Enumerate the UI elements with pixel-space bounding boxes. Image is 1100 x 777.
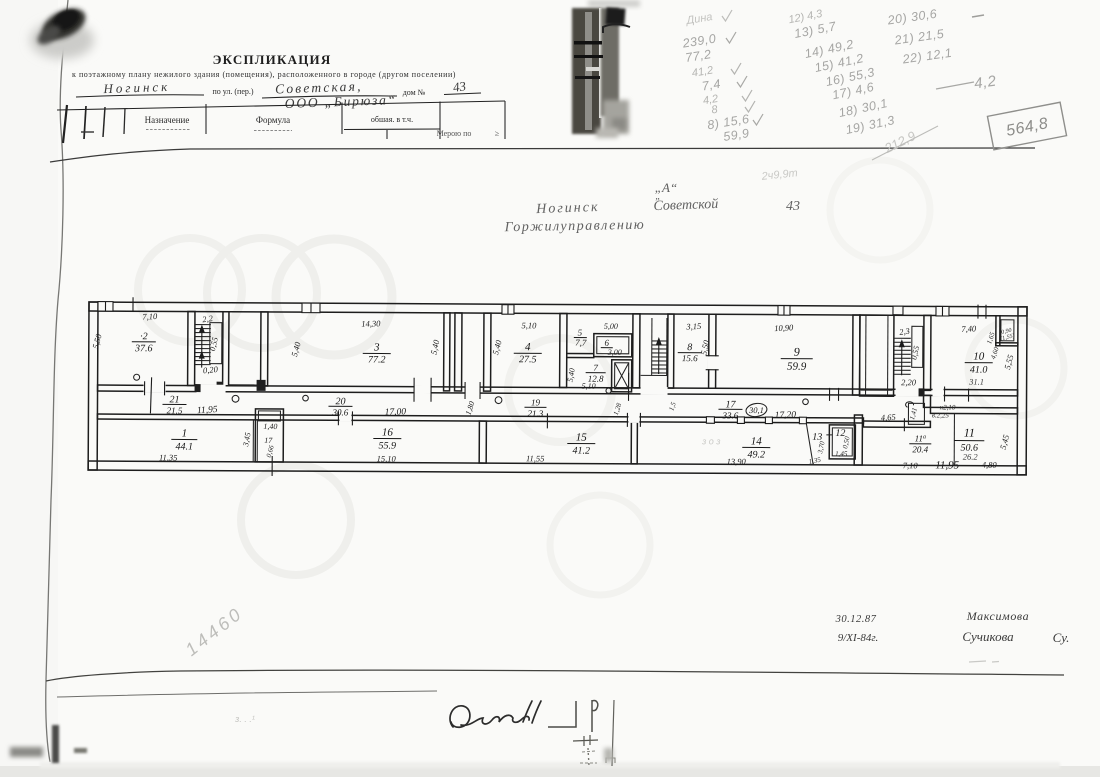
- svg-text:5: 5: [578, 328, 583, 338]
- svg-text:к поэтажному плану нежилого зд: к поэтажному плану нежилого здания (поме…: [72, 70, 456, 79]
- svg-text:15: 15: [576, 432, 588, 444]
- svg-text:4,80: 4,80: [982, 460, 998, 470]
- svg-text:43: 43: [452, 78, 467, 95]
- svg-text:8: 8: [687, 342, 692, 353]
- svg-text:16: 16: [382, 427, 394, 439]
- svg-text:1,45: 1,45: [835, 450, 848, 458]
- svg-text:Горжилуправлению: Горжилуправлению: [504, 218, 646, 235]
- svg-text:1,40: 1,40: [263, 422, 277, 431]
- svg-text:Мерою по: Мерою по: [437, 129, 472, 138]
- svg-text:Максимова: Максимова: [966, 609, 1030, 623]
- svg-text:Сучикова: Сучикова: [962, 629, 1014, 644]
- svg-text:7,4: 7,4: [701, 77, 722, 94]
- svg-text:10,90: 10,90: [774, 322, 794, 333]
- svg-text:7,7: 7,7: [575, 338, 587, 348]
- svg-text:20: 20: [335, 396, 345, 407]
- svg-text:3,15: 3,15: [685, 321, 701, 332]
- svg-text:55.9: 55.9: [378, 441, 396, 452]
- svg-text:21.3: 21.3: [528, 408, 544, 418]
- svg-text:по ул. (пер.): по ул. (пер.): [212, 87, 253, 96]
- svg-text:31.1: 31.1: [968, 377, 984, 387]
- svg-text:17,20: 17,20: [775, 410, 797, 421]
- svg-text:15,10: 15,10: [377, 454, 397, 464]
- svg-text:11,95: 11,95: [935, 459, 959, 471]
- svg-text:41.0: 41.0: [970, 365, 988, 376]
- svg-text:15.6: 15.6: [682, 353, 698, 363]
- svg-text:в.2,25: в.2,25: [932, 411, 950, 419]
- svg-text:Назначение: Назначение: [145, 115, 190, 125]
- svg-text:14,30: 14,30: [361, 318, 381, 329]
- svg-text:7,40: 7,40: [961, 323, 977, 334]
- svg-text:77.2: 77.2: [368, 354, 386, 365]
- svg-text:н2,10: н2,10: [940, 403, 956, 411]
- svg-text:4,65: 4,65: [880, 412, 895, 423]
- svg-text:Ногинск: Ногинск: [535, 200, 600, 217]
- svg-text:з. . .¹: з. . .¹: [234, 714, 255, 724]
- svg-text:Советской: Советской: [653, 197, 718, 214]
- svg-text:Су.: Су.: [1053, 630, 1070, 645]
- svg-text:2,2: 2,2: [202, 313, 215, 324]
- svg-text:49.2: 49.2: [747, 449, 765, 460]
- svg-text:44.1: 44.1: [175, 441, 193, 452]
- svg-text:37.6: 37.6: [134, 343, 153, 354]
- svg-text:7,10: 7,10: [142, 311, 158, 322]
- svg-text:17,00: 17,00: [385, 407, 407, 418]
- svg-text:4: 4: [525, 341, 531, 353]
- svg-text:9/ХI-84г.: 9/ХI-84г.: [838, 632, 879, 644]
- svg-text:2,20: 2,20: [901, 377, 917, 387]
- svg-text:59.9: 59.9: [787, 361, 807, 373]
- svg-text:Формула: Формула: [256, 115, 290, 125]
- svg-text:17: 17: [725, 399, 736, 410]
- svg-text:дом №: дом №: [403, 88, 426, 97]
- svg-text:19: 19: [531, 397, 541, 407]
- svg-text:ЭКСПЛИКАЦИЯ: ЭКСПЛИКАЦИЯ: [213, 52, 332, 67]
- svg-text:7,10: 7,10: [903, 460, 919, 470]
- svg-text:5,00: 5,00: [604, 322, 618, 331]
- svg-text:10: 10: [973, 351, 985, 363]
- svg-text:43: 43: [786, 199, 800, 214]
- svg-text:5,10: 5,10: [582, 382, 596, 391]
- svg-text:27.5: 27.5: [519, 354, 537, 365]
- svg-text:30,1: 30,1: [748, 405, 764, 415]
- svg-text:21.5: 21.5: [167, 405, 183, 415]
- svg-text:≥: ≥: [495, 129, 500, 138]
- svg-text:30.6: 30.6: [332, 407, 349, 417]
- svg-text:26.2: 26.2: [963, 452, 979, 462]
- svg-text:20.4: 20.4: [912, 444, 928, 454]
- svg-text:9: 9: [794, 345, 800, 359]
- svg-text:11: 11: [964, 426, 975, 440]
- svg-text:11,35: 11,35: [159, 452, 178, 462]
- svg-text:7: 7: [593, 363, 598, 373]
- svg-text:1: 1: [182, 427, 188, 439]
- svg-text:14: 14: [751, 435, 763, 447]
- svg-text:3,00: 3,00: [607, 348, 622, 357]
- svg-text:30.12.87: 30.12.87: [835, 614, 877, 625]
- svg-text:6: 6: [605, 338, 610, 348]
- svg-text:4,2: 4,2: [973, 73, 998, 93]
- svg-text:·2: ·2: [140, 331, 148, 342]
- svg-text:21: 21: [169, 394, 179, 405]
- svg-text:2,3: 2,3: [899, 326, 911, 337]
- svg-text:41.2: 41.2: [572, 446, 590, 457]
- svg-text:обшая. в т.ч.: обшая. в т.ч.: [371, 115, 413, 124]
- svg-text:5,10: 5,10: [521, 320, 537, 330]
- svg-text:11,55: 11,55: [526, 453, 545, 463]
- svg-text:0,20: 0,20: [202, 364, 219, 376]
- svg-text:17: 17: [264, 436, 273, 445]
- svg-text:з о з: з о з: [701, 436, 720, 446]
- svg-text:3: 3: [373, 341, 380, 353]
- svg-text:33.6: 33.6: [722, 410, 739, 420]
- svg-text:Ногинск: Ногинск: [102, 79, 170, 96]
- svg-text:13,90: 13,90: [727, 456, 747, 466]
- svg-text:11,95: 11,95: [197, 405, 219, 416]
